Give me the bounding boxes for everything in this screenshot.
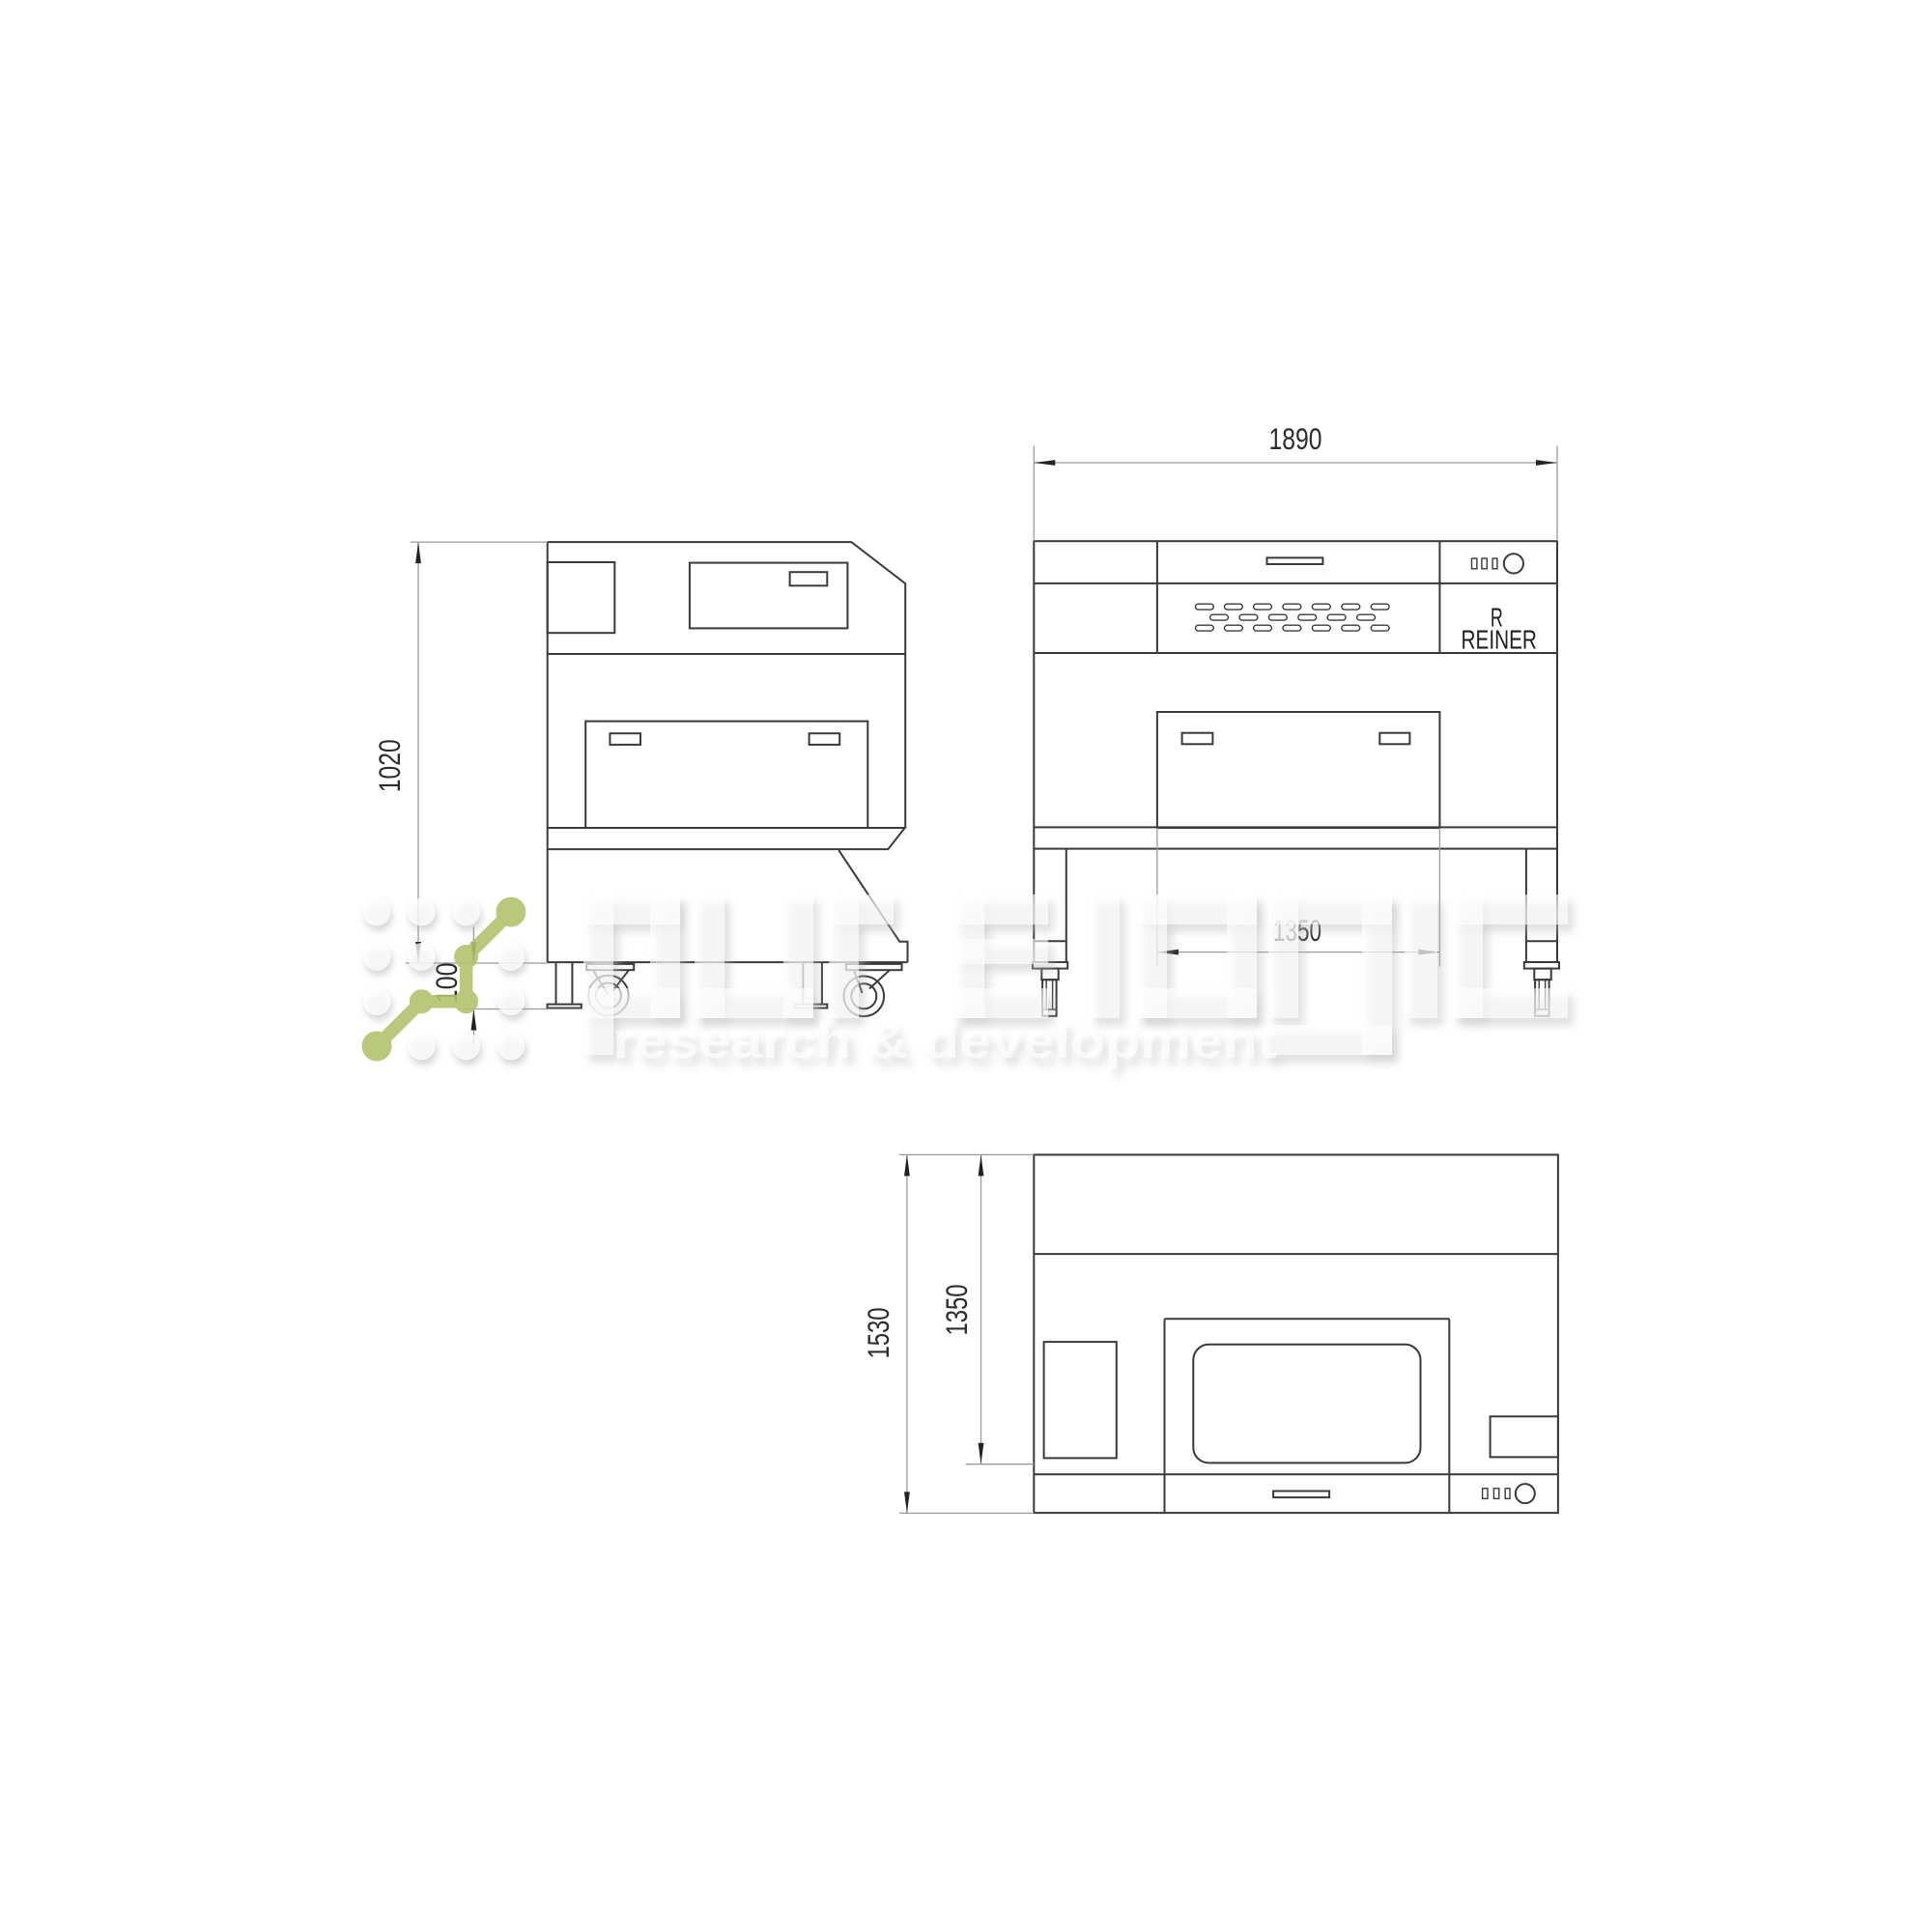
svg-text:1020: 1020 [372,739,407,792]
svg-text:REINER: REINER [1462,625,1537,655]
svg-text:research & development: research & development [613,1012,1277,1069]
svg-text:1350: 1350 [939,1285,974,1336]
svg-text:1530: 1530 [861,1308,895,1359]
svg-text:1890: 1890 [1269,421,1322,456]
